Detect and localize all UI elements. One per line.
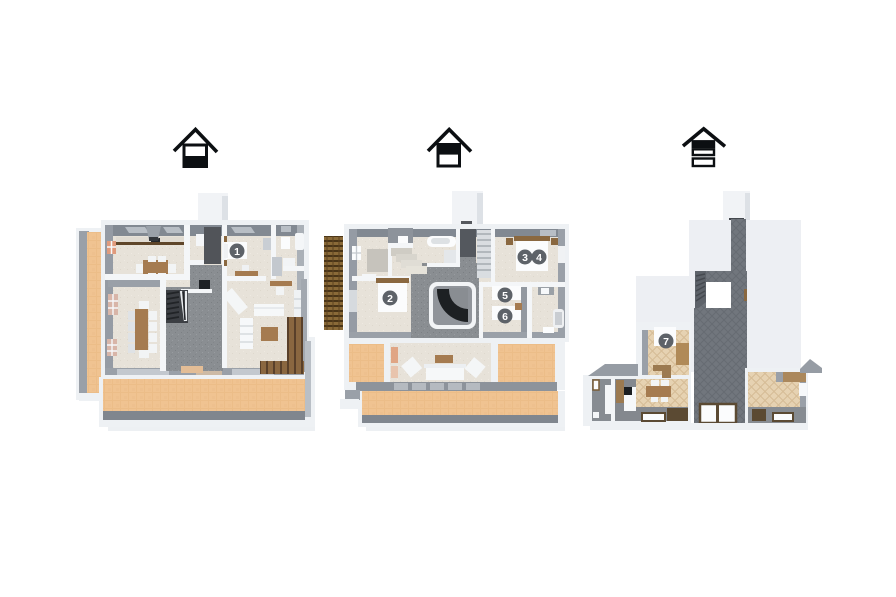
svg-text:6: 6	[502, 311, 508, 323]
svg-text:2: 2	[387, 293, 393, 305]
svg-text:1: 1	[234, 246, 240, 258]
svg-text:4: 4	[536, 252, 542, 264]
svg-text:5: 5	[502, 290, 508, 302]
svg-text:7: 7	[663, 336, 669, 348]
svg-text:3: 3	[522, 252, 528, 264]
